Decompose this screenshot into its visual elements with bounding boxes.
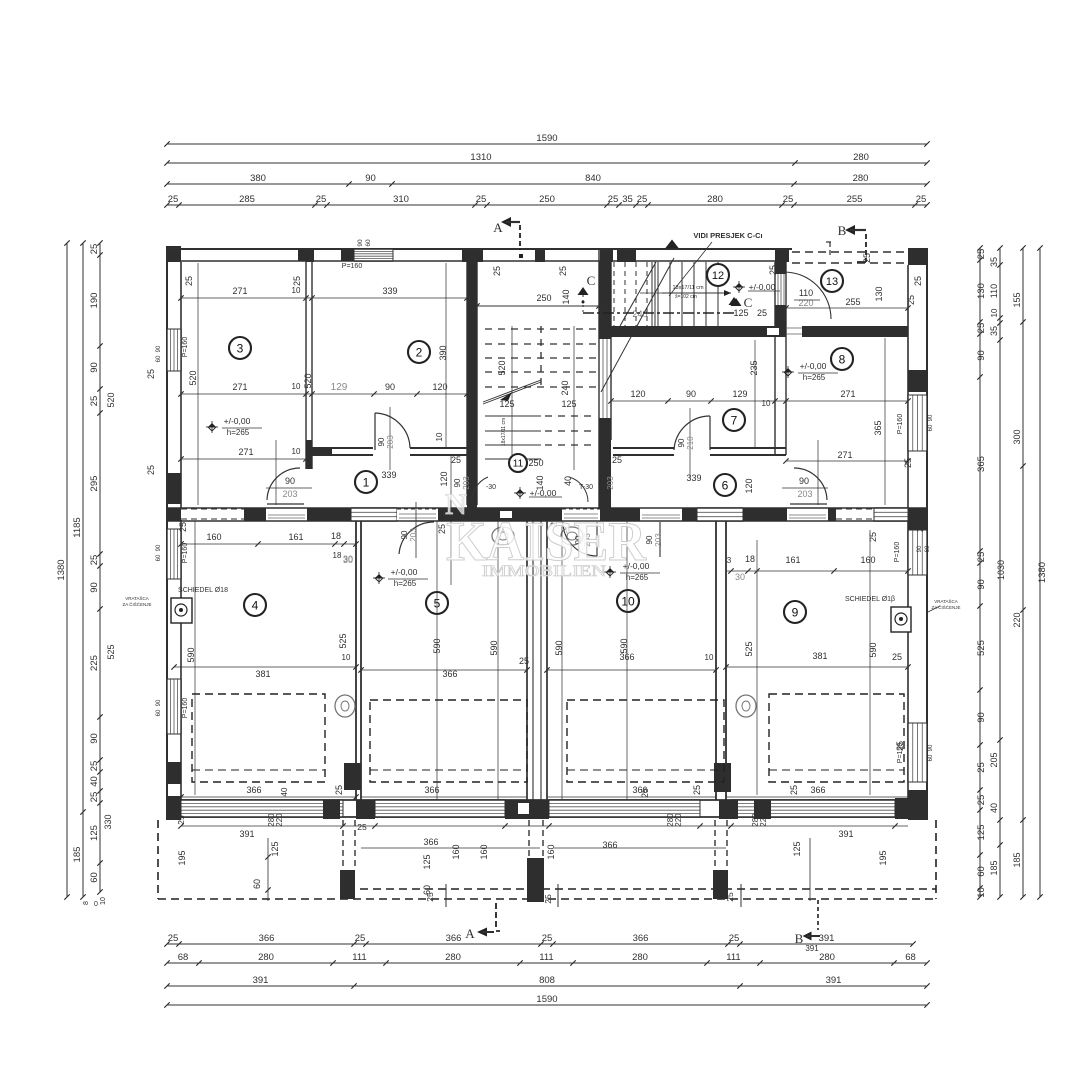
svg-text:25: 25 xyxy=(89,761,100,772)
svg-text:IMMOBILIEN: IMMOBILIEN xyxy=(482,563,607,580)
svg-text:60: 60 xyxy=(976,866,987,877)
svg-text:35: 35 xyxy=(622,194,633,205)
svg-text:25: 25 xyxy=(542,933,553,944)
svg-text:205: 205 xyxy=(989,752,999,767)
svg-text:25: 25 xyxy=(89,396,100,407)
svg-text:250: 250 xyxy=(539,194,555,205)
svg-text:25: 25 xyxy=(357,822,367,832)
svg-text:25: 25 xyxy=(292,276,302,286)
svg-text:339: 339 xyxy=(686,473,701,483)
svg-text:40: 40 xyxy=(563,476,573,486)
svg-text:220: 220 xyxy=(759,813,768,827)
svg-text:285: 285 xyxy=(239,194,255,205)
svg-text:203: 203 xyxy=(797,489,812,499)
svg-text:190: 190 xyxy=(89,293,100,309)
svg-text:220: 220 xyxy=(798,298,813,308)
svg-text:25: 25 xyxy=(543,894,553,904)
svg-text:140: 140 xyxy=(561,289,571,304)
svg-text:110: 110 xyxy=(799,288,813,298)
svg-text:h=265: h=265 xyxy=(803,373,826,382)
svg-text:90: 90 xyxy=(976,579,987,590)
svg-text:P=150: P=150 xyxy=(897,743,904,764)
svg-text:25: 25 xyxy=(976,795,987,806)
svg-text:90: 90 xyxy=(156,699,162,706)
svg-text:90: 90 xyxy=(285,476,295,486)
svg-text:10: 10 xyxy=(292,382,301,391)
svg-text:25: 25 xyxy=(492,266,502,276)
svg-text:366: 366 xyxy=(259,933,275,944)
svg-text:160: 160 xyxy=(206,532,221,542)
svg-text:111: 111 xyxy=(726,952,740,963)
svg-text:130: 130 xyxy=(874,286,884,301)
svg-text:8: 8 xyxy=(83,901,90,905)
svg-text:330: 330 xyxy=(103,814,113,829)
svg-text:VIDI PRESJEK C-Cı: VIDI PRESJEK C-Cı xyxy=(693,231,762,240)
svg-text:25: 25 xyxy=(612,455,622,465)
svg-text:90: 90 xyxy=(377,437,386,446)
svg-text:25: 25 xyxy=(915,522,925,532)
svg-text:VRATAŠCA: VRATAŠCA xyxy=(934,598,958,604)
svg-text:P=160: P=160 xyxy=(897,414,904,435)
svg-text:25: 25 xyxy=(768,265,778,275)
svg-text:25: 25 xyxy=(976,323,987,334)
svg-text:160: 160 xyxy=(546,844,556,859)
svg-text:25: 25 xyxy=(906,295,916,305)
svg-text:280: 280 xyxy=(819,952,835,963)
svg-text:10: 10 xyxy=(990,308,999,317)
svg-text:120: 120 xyxy=(744,478,754,493)
svg-text:h=265: h=265 xyxy=(626,573,649,582)
svg-text:25: 25 xyxy=(355,933,366,944)
svg-text:391: 391 xyxy=(819,933,835,944)
svg-text:366: 366 xyxy=(246,785,261,795)
svg-text:P=160: P=160 xyxy=(342,263,363,270)
svg-text:18: 18 xyxy=(331,531,341,541)
svg-text:590: 590 xyxy=(868,642,878,657)
svg-text:391: 391 xyxy=(253,975,269,986)
svg-text:60: 60 xyxy=(925,545,931,552)
svg-text:+/-0,00: +/-0,00 xyxy=(800,361,827,371)
svg-text:380: 380 xyxy=(250,173,266,184)
svg-text:271: 271 xyxy=(840,389,855,399)
svg-text:25: 25 xyxy=(451,455,461,465)
svg-text:339: 339 xyxy=(382,286,397,296)
svg-text:271: 271 xyxy=(232,382,247,392)
svg-text:90: 90 xyxy=(976,350,987,361)
svg-text:60: 60 xyxy=(365,239,372,247)
svg-text:590: 590 xyxy=(619,638,629,653)
svg-text:60: 60 xyxy=(422,885,432,895)
svg-text:1380: 1380 xyxy=(1037,562,1048,583)
svg-text:125: 125 xyxy=(561,399,576,409)
svg-text:10: 10 xyxy=(342,653,351,662)
svg-text:25: 25 xyxy=(976,762,987,773)
svg-text:25: 25 xyxy=(168,194,179,205)
svg-text:255: 255 xyxy=(847,194,863,205)
svg-text:590: 590 xyxy=(186,647,196,662)
svg-text:6: 6 xyxy=(722,478,729,492)
svg-text:+/-0,00: +/-0,00 xyxy=(749,282,776,292)
svg-text:60: 60 xyxy=(928,424,934,431)
svg-text:25: 25 xyxy=(519,656,529,666)
svg-text:25: 25 xyxy=(913,276,923,286)
svg-text:90: 90 xyxy=(365,173,376,184)
svg-text:520: 520 xyxy=(497,360,507,375)
svg-text:1590: 1590 xyxy=(536,994,557,1005)
svg-text:25: 25 xyxy=(476,194,487,205)
svg-text:13: 13 xyxy=(826,276,838,288)
svg-text:1380: 1380 xyxy=(56,559,67,580)
svg-text:25: 25 xyxy=(862,253,872,263)
svg-text:2: 2 xyxy=(416,345,423,359)
svg-text:90: 90 xyxy=(976,712,987,723)
svg-text:11: 11 xyxy=(513,459,524,470)
svg-text:391: 391 xyxy=(826,975,842,986)
svg-text:P=160: P=160 xyxy=(182,543,189,564)
svg-text:T-30: T-30 xyxy=(579,484,593,491)
svg-text:160: 160 xyxy=(860,555,875,565)
svg-text:68: 68 xyxy=(178,952,189,963)
svg-text:25: 25 xyxy=(916,194,927,205)
svg-text:280: 280 xyxy=(445,952,461,963)
svg-text:90: 90 xyxy=(677,438,686,447)
svg-text:25: 25 xyxy=(903,458,913,468)
svg-text:390: 390 xyxy=(438,345,448,360)
svg-text:590: 590 xyxy=(554,640,564,655)
svg-text:235: 235 xyxy=(749,360,759,375)
svg-text:1030: 1030 xyxy=(996,560,1006,580)
svg-text:125: 125 xyxy=(422,854,432,869)
svg-text:210: 210 xyxy=(686,436,695,450)
svg-text:110: 110 xyxy=(989,284,999,298)
svg-text:25: 25 xyxy=(868,532,878,542)
svg-text:h=265: h=265 xyxy=(227,428,250,437)
svg-text:10: 10 xyxy=(705,653,714,662)
svg-text:225: 225 xyxy=(89,655,100,671)
svg-text:-30: -30 xyxy=(486,484,496,491)
svg-text:203: 203 xyxy=(386,435,395,449)
svg-text:366: 366 xyxy=(442,669,457,679)
svg-text:h=265: h=265 xyxy=(394,579,417,588)
svg-text:90: 90 xyxy=(799,476,809,486)
svg-text:90: 90 xyxy=(89,733,100,744)
svg-text:90: 90 xyxy=(89,582,100,593)
svg-text:90: 90 xyxy=(453,478,462,487)
svg-text:25: 25 xyxy=(168,933,179,944)
svg-text:B: B xyxy=(838,223,847,238)
svg-text:VRATAŠCA: VRATAŠCA xyxy=(125,595,149,601)
svg-text:161: 161 xyxy=(288,532,303,542)
svg-text:ZA ČIŠĆENJE: ZA ČIŠĆENJE xyxy=(122,601,151,607)
svg-text:18: 18 xyxy=(745,554,755,564)
svg-text:25: 25 xyxy=(146,465,156,475)
svg-text:280: 280 xyxy=(751,813,760,827)
svg-text:366: 366 xyxy=(423,837,438,847)
svg-text:90: 90 xyxy=(917,545,923,552)
svg-text:25: 25 xyxy=(976,249,987,260)
svg-text:120: 120 xyxy=(439,471,449,486)
svg-text:10: 10 xyxy=(292,286,301,295)
svg-text:25: 25 xyxy=(976,552,987,563)
svg-text:0: 0 xyxy=(94,901,98,908)
svg-text:280: 280 xyxy=(632,952,648,963)
svg-text:366: 366 xyxy=(602,840,617,850)
svg-text:P=160: P=160 xyxy=(182,337,189,358)
svg-text:90: 90 xyxy=(89,362,100,373)
svg-text:130: 130 xyxy=(976,283,987,299)
svg-text:25: 25 xyxy=(316,194,327,205)
svg-text:25: 25 xyxy=(89,555,100,566)
svg-text:P=160: P=160 xyxy=(894,542,901,563)
svg-text:ZA ČIŠĆENJE: ZA ČIŠĆENJE xyxy=(931,604,960,610)
svg-text:90: 90 xyxy=(645,535,654,544)
svg-text:7: 7 xyxy=(731,413,738,427)
svg-text:C: C xyxy=(587,273,596,288)
svg-text:220: 220 xyxy=(1012,612,1022,627)
svg-text:203: 203 xyxy=(606,476,615,490)
svg-text:3: 3 xyxy=(237,341,244,355)
svg-text:25: 25 xyxy=(184,276,194,286)
svg-text:280: 280 xyxy=(258,952,274,963)
svg-text:160: 160 xyxy=(479,844,489,859)
svg-text:60: 60 xyxy=(156,709,162,716)
svg-text:525: 525 xyxy=(744,641,754,656)
svg-text:125: 125 xyxy=(89,825,100,841)
svg-text:90: 90 xyxy=(928,744,934,751)
svg-text:25: 25 xyxy=(692,785,702,795)
svg-text:160: 160 xyxy=(451,844,461,859)
svg-text:60: 60 xyxy=(156,554,162,561)
svg-text:125: 125 xyxy=(976,825,987,841)
svg-text:12: 12 xyxy=(712,270,724,282)
svg-text:25: 25 xyxy=(757,308,767,318)
svg-text:30: 30 xyxy=(735,572,745,582)
svg-text:90: 90 xyxy=(400,530,409,539)
svg-text:520: 520 xyxy=(188,370,198,385)
svg-text:SCHIEDEL Ø18: SCHIEDEL Ø18 xyxy=(178,587,228,594)
svg-text:840: 840 xyxy=(585,173,601,184)
svg-text:10: 10 xyxy=(292,447,301,456)
svg-text:203: 203 xyxy=(409,528,418,542)
svg-text:90: 90 xyxy=(357,239,364,247)
svg-text:310: 310 xyxy=(393,194,409,205)
svg-text:1590: 1590 xyxy=(536,133,557,144)
svg-text:255: 255 xyxy=(845,297,860,307)
svg-text:366: 366 xyxy=(446,933,462,944)
svg-text:391: 391 xyxy=(838,829,853,839)
svg-text:203: 203 xyxy=(654,533,663,547)
svg-text:129: 129 xyxy=(331,382,348,393)
svg-text:25: 25 xyxy=(176,815,186,825)
svg-text:339: 339 xyxy=(381,470,396,480)
svg-text:90: 90 xyxy=(156,544,162,551)
svg-text:25: 25 xyxy=(789,785,799,795)
svg-text:10: 10 xyxy=(976,887,987,898)
svg-text:525: 525 xyxy=(976,640,987,656)
svg-text:185: 185 xyxy=(989,860,999,875)
svg-text:525: 525 xyxy=(338,633,348,648)
svg-text:25: 25 xyxy=(558,266,568,276)
svg-text:220: 220 xyxy=(275,813,284,827)
svg-text:271: 271 xyxy=(232,286,247,296)
svg-text:A: A xyxy=(465,926,475,941)
svg-text:90: 90 xyxy=(385,382,395,392)
svg-text:161: 161 xyxy=(785,555,800,565)
svg-text:40: 40 xyxy=(989,803,999,813)
svg-text:140: 140 xyxy=(535,475,545,490)
svg-text:10: 10 xyxy=(621,594,635,608)
svg-text:125: 125 xyxy=(733,308,748,318)
svg-text:25: 25 xyxy=(640,788,650,798)
svg-text:365: 365 xyxy=(873,420,883,435)
svg-text:+/-0,00: +/-0,00 xyxy=(391,567,418,577)
svg-text:125: 125 xyxy=(270,841,280,856)
svg-text:129: 129 xyxy=(732,389,747,399)
svg-text:4: 4 xyxy=(252,598,259,612)
svg-text:250: 250 xyxy=(536,293,551,303)
svg-text:590: 590 xyxy=(489,640,499,655)
svg-text:203: 203 xyxy=(282,489,297,499)
svg-text:1310: 1310 xyxy=(470,152,491,163)
svg-text:25: 25 xyxy=(608,194,619,205)
svg-text:25: 25 xyxy=(729,933,740,944)
svg-text:25: 25 xyxy=(334,785,344,795)
svg-text:18: 18 xyxy=(333,551,342,560)
svg-text:280: 280 xyxy=(707,194,723,205)
svg-text:B: B xyxy=(795,931,804,946)
svg-text:520: 520 xyxy=(303,373,313,388)
svg-text:3: 3 xyxy=(727,556,732,565)
svg-text:120: 120 xyxy=(432,382,447,392)
svg-text:366: 366 xyxy=(633,933,649,944)
svg-text:280: 280 xyxy=(853,152,869,163)
svg-text:8: 8 xyxy=(839,352,846,366)
svg-text:381: 381 xyxy=(255,669,270,679)
svg-text:10: 10 xyxy=(435,432,444,441)
svg-text:25: 25 xyxy=(637,194,648,205)
svg-text:295: 295 xyxy=(89,476,100,492)
svg-text:š=102 cm: š=102 cm xyxy=(675,294,697,300)
svg-text:271: 271 xyxy=(238,447,253,457)
svg-text:25: 25 xyxy=(89,792,100,803)
svg-text:366: 366 xyxy=(810,785,825,795)
svg-text:120: 120 xyxy=(630,389,645,399)
svg-text:60: 60 xyxy=(252,879,262,889)
svg-text:68: 68 xyxy=(905,952,916,963)
svg-text:250: 250 xyxy=(528,458,543,468)
svg-text:40: 40 xyxy=(89,776,100,787)
svg-text:240: 240 xyxy=(632,309,647,319)
svg-text:9: 9 xyxy=(792,605,799,619)
svg-text:391: 391 xyxy=(239,829,254,839)
svg-text:25: 25 xyxy=(89,244,100,255)
svg-text:35: 35 xyxy=(989,326,999,336)
svg-text:25: 25 xyxy=(915,370,925,380)
svg-text:25: 25 xyxy=(146,369,156,379)
svg-text:271: 271 xyxy=(837,450,852,460)
svg-text:90: 90 xyxy=(928,414,934,421)
svg-text:381: 381 xyxy=(812,651,827,661)
svg-text:185: 185 xyxy=(72,847,83,863)
svg-text:391: 391 xyxy=(805,944,819,953)
svg-text:18x17/11 cm: 18x17/11 cm xyxy=(501,418,507,446)
svg-text:30: 30 xyxy=(343,555,353,565)
svg-text:240: 240 xyxy=(560,380,570,395)
svg-text:300: 300 xyxy=(1012,429,1022,444)
svg-text:60: 60 xyxy=(156,355,162,362)
svg-text:280: 280 xyxy=(853,173,869,184)
svg-text:60: 60 xyxy=(89,872,100,883)
svg-text:1185: 1185 xyxy=(72,517,83,537)
svg-text:90: 90 xyxy=(686,389,696,399)
svg-text:25: 25 xyxy=(178,522,188,532)
svg-text:25: 25 xyxy=(892,652,902,662)
svg-text:+/-0,00: +/-0,00 xyxy=(224,416,251,426)
svg-text:1: 1 xyxy=(363,475,370,489)
svg-text:111: 111 xyxy=(539,952,553,963)
svg-text:808: 808 xyxy=(539,975,555,986)
svg-text:520: 520 xyxy=(106,392,116,407)
svg-text:195: 195 xyxy=(177,850,187,865)
svg-text:590: 590 xyxy=(432,638,442,653)
svg-text:365: 365 xyxy=(976,456,987,472)
svg-text:195: 195 xyxy=(878,850,888,865)
svg-text:220: 220 xyxy=(674,813,683,827)
svg-text:40: 40 xyxy=(280,787,289,796)
svg-text:10: 10 xyxy=(762,399,771,408)
svg-text:25: 25 xyxy=(783,194,794,205)
svg-text:25: 25 xyxy=(725,892,735,902)
svg-text:280: 280 xyxy=(267,813,276,827)
svg-text:125: 125 xyxy=(792,841,802,856)
svg-text:111: 111 xyxy=(352,952,366,963)
svg-text:155: 155 xyxy=(1012,292,1022,307)
svg-text:125: 125 xyxy=(499,399,514,409)
svg-text:185: 185 xyxy=(1012,852,1022,867)
svg-text:10: 10 xyxy=(100,897,107,905)
svg-text:P=160: P=160 xyxy=(182,698,189,719)
svg-text:525: 525 xyxy=(106,644,116,659)
svg-text:35: 35 xyxy=(989,257,999,267)
svg-text:90: 90 xyxy=(156,345,162,352)
svg-text:60: 60 xyxy=(928,754,934,761)
